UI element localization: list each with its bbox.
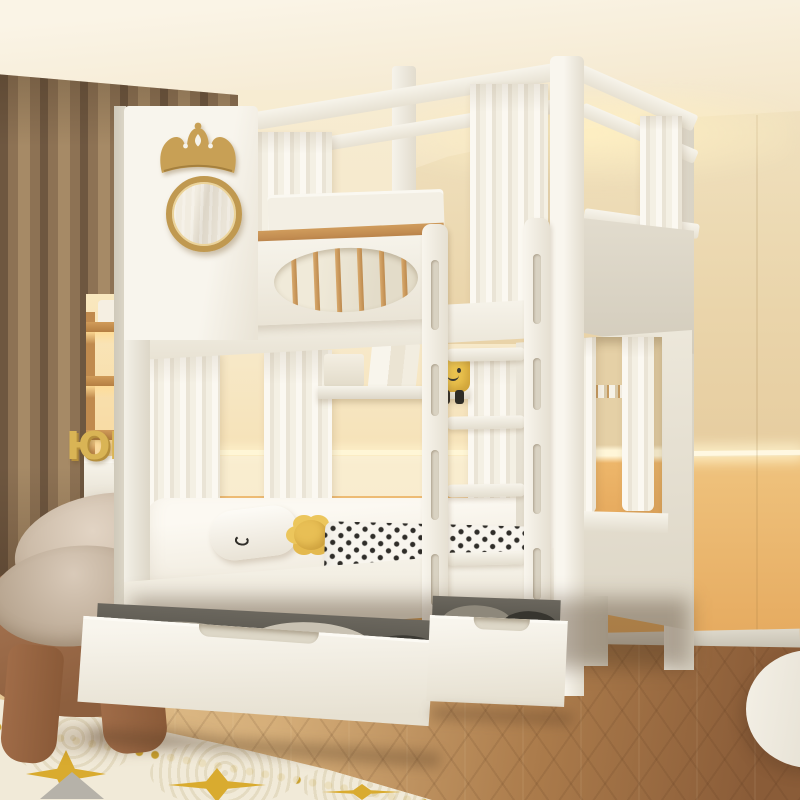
oval-spindle-window bbox=[273, 245, 419, 314]
ladder-slot bbox=[431, 450, 439, 520]
drawer-handle-cutout bbox=[473, 617, 529, 631]
gold-spindle bbox=[313, 245, 321, 314]
window-curtain bbox=[622, 337, 654, 511]
round-gold-mirror bbox=[166, 176, 242, 252]
gold-spindle bbox=[357, 245, 365, 314]
ladder-slot bbox=[533, 444, 541, 514]
ladder-rung bbox=[446, 551, 526, 565]
plush-smile bbox=[447, 374, 459, 381]
wall-corner-line bbox=[756, 115, 758, 635]
pillow-print bbox=[234, 535, 249, 547]
gold-spindle bbox=[401, 245, 409, 314]
gold-spindle bbox=[379, 245, 387, 314]
plush-eye bbox=[457, 368, 461, 373]
ladder-rung bbox=[446, 483, 526, 497]
ladder-slot bbox=[533, 254, 541, 324]
shelf-storage-box bbox=[324, 354, 364, 387]
shelf-books bbox=[368, 344, 421, 387]
ladder-rung bbox=[446, 415, 526, 429]
bedroom-photo: ЮМ bbox=[0, 0, 800, 800]
canopy-curtain bbox=[640, 116, 682, 238]
ladder-slot bbox=[431, 364, 439, 416]
upper-guard-panel bbox=[246, 234, 445, 325]
gold-spindle bbox=[335, 245, 343, 314]
ladder-slot bbox=[533, 358, 541, 410]
gold-crown-decor bbox=[156, 120, 240, 180]
flower-pillow-petals bbox=[294, 520, 328, 550]
right-storage-drawer bbox=[426, 615, 568, 707]
ladder-rung bbox=[446, 347, 526, 361]
gold-spindle bbox=[291, 246, 299, 315]
pod-chair-leg bbox=[0, 643, 65, 765]
plush-foot bbox=[455, 390, 464, 404]
ladder-slot bbox=[533, 548, 541, 600]
ladder-slot bbox=[431, 260, 439, 330]
